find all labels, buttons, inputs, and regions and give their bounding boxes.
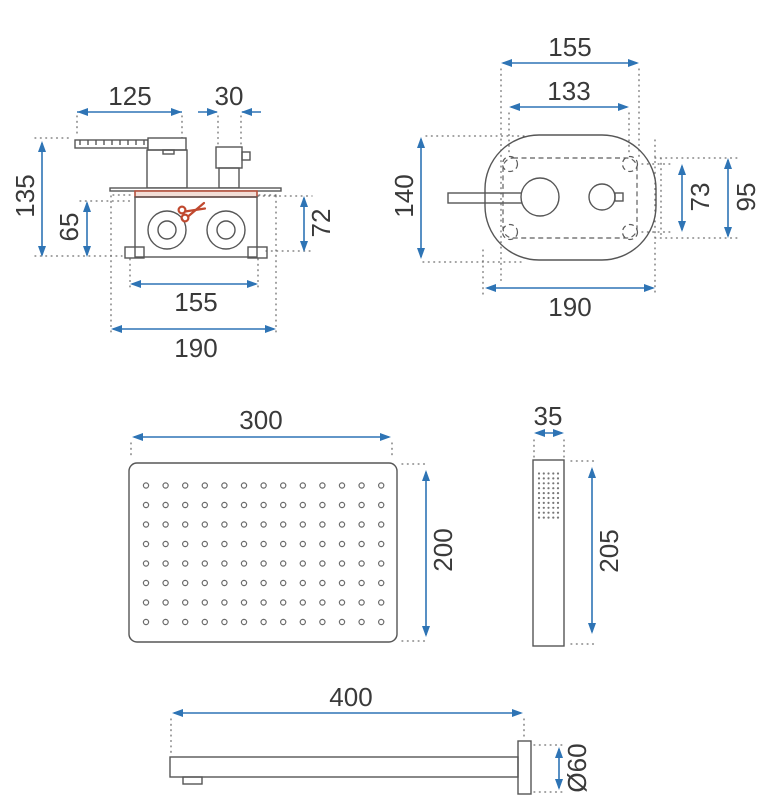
- dim-holes-width: 133: [509, 76, 629, 111]
- diverter-knob-front: [589, 184, 615, 210]
- diverter-nub: [242, 152, 250, 160]
- dim-label-hand-shower-length: 205: [594, 529, 624, 572]
- dim-label-flange-width-side: 190: [174, 333, 217, 363]
- dim-spout-diameter: Ø60: [555, 743, 592, 792]
- diverter-nub-front: [615, 193, 623, 201]
- spout-arm: [170, 757, 518, 777]
- mixer-side-view: 125 30 135 65 72: [10, 81, 336, 363]
- mount-hole-top-right: [623, 157, 638, 172]
- dim-label-plate-width: 155: [548, 32, 591, 62]
- mount-hole-bottom-left: [503, 225, 518, 240]
- dim-holes-height: 73: [678, 164, 715, 232]
- dim-label-diverter-width: 30: [215, 81, 244, 111]
- dim-head-width: 300: [132, 405, 391, 441]
- lever-hub: [148, 138, 186, 150]
- dim-label-body-height: 65: [54, 213, 84, 242]
- wall-spout-reference-lines: [171, 719, 566, 792]
- mixer-knob-front: [521, 178, 559, 216]
- dim-head-height: 200: [422, 470, 458, 637]
- dim-label-inner-height: 95: [731, 183, 761, 212]
- dim-label-spout-diameter: Ø60: [562, 743, 592, 792]
- dim-spout-length: 400: [172, 682, 523, 717]
- hand-shower-view: 35 205: [533, 401, 624, 646]
- dim-inner-height: 95: [724, 158, 761, 238]
- dim-label-body-width: 155: [174, 287, 217, 317]
- wall-spout-view: 400 Ø60: [170, 682, 592, 794]
- dim-label-total-height: 135: [10, 174, 40, 217]
- hand-shower-reference-lines: [534, 440, 597, 644]
- hand-shower-nozzle-grid: [538, 472, 559, 518]
- dim-label-spout-length: 400: [329, 682, 372, 712]
- mount-hole-top-left: [503, 157, 518, 172]
- dim-body-depth: 72: [300, 196, 336, 252]
- dim-plate-height: 140: [389, 137, 425, 259]
- mixer-side-body: [75, 138, 281, 258]
- dim-total-height: 135: [10, 141, 46, 257]
- rain-shower-head-view: 300 200: [129, 405, 458, 642]
- mount-hole-bottom-right: [623, 225, 638, 240]
- valve-port-right-inner: [217, 221, 235, 239]
- cartridge-detail: [163, 150, 174, 154]
- valve-port-right-outer: [207, 211, 245, 249]
- trim-plate: [485, 135, 656, 260]
- dim-plate-width: 155: [501, 32, 639, 67]
- wall-flange: [518, 741, 531, 794]
- cartridge-stem: [147, 150, 187, 188]
- dim-body-width: 155: [130, 280, 258, 317]
- dim-label-head-width: 300: [239, 405, 282, 435]
- dim-label-holes-width: 133: [547, 76, 590, 106]
- spout-outlet: [183, 777, 202, 784]
- dim-body-height: 65: [54, 201, 91, 257]
- dim-hand-shower-width: 35: [534, 401, 564, 437]
- mixer-front-view: 155 133 140 73 95: [389, 32, 761, 322]
- dim-flange-width-front: 190: [485, 284, 655, 322]
- diverter-knob: [216, 147, 242, 168]
- dim-diverter-width: 30: [198, 81, 261, 116]
- mixer-front-body: [448, 135, 656, 260]
- dim-label-hand-shower-width: 35: [534, 401, 563, 431]
- valve-port-left-outer: [148, 211, 186, 249]
- dim-label-body-depth: 72: [306, 209, 336, 238]
- valve-port-left-inner: [158, 221, 176, 239]
- dim-label-flange-width-front: 190: [548, 292, 591, 322]
- diverter-stem: [219, 168, 239, 188]
- valve-box: [135, 197, 257, 257]
- dim-label-handle-length: 125: [108, 81, 151, 111]
- dim-label-head-height: 200: [428, 528, 458, 571]
- dim-flange-width-side: 190: [111, 325, 276, 363]
- technical-drawing: 125 30 135 65 72: [0, 0, 767, 811]
- scissors-cut-icon: [179, 203, 205, 221]
- shower-head-plate: [129, 463, 397, 642]
- shower-head-nozzle-grid: [143, 483, 383, 625]
- dim-handle-length: 125: [77, 81, 182, 116]
- dim-label-plate-height: 140: [389, 174, 419, 217]
- dim-hand-shower-length: 205: [588, 467, 624, 634]
- cut-line-band: [135, 191, 257, 197]
- dim-label-holes-height: 73: [685, 183, 715, 212]
